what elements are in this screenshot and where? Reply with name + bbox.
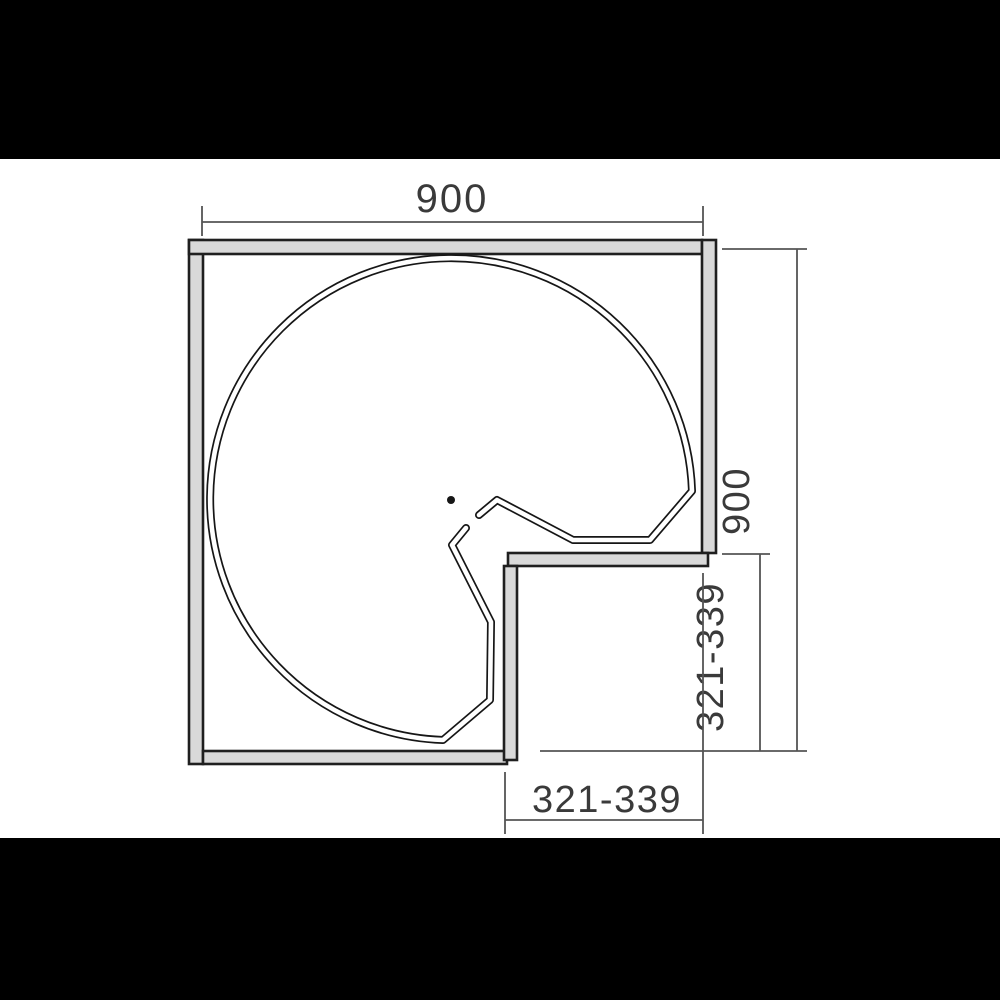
letterbox-top xyxy=(0,0,1000,159)
cabinet-right-wall xyxy=(702,240,716,553)
drawing-canvas: 900 900 321-339 321-339 xyxy=(0,0,1000,1000)
dim-recess-width-label: 321-339 xyxy=(532,779,682,821)
pivot-dot xyxy=(447,496,455,504)
cabinet-bottom-wall xyxy=(203,751,507,764)
dim-cabinet-width-label: 900 xyxy=(416,177,489,221)
dim-cabinet-depth-label: 900 xyxy=(716,467,758,535)
dim-recess-depth-label: 321-339 xyxy=(690,582,732,732)
cabinet-left-wall xyxy=(189,240,203,764)
cabinet-top-wall xyxy=(189,240,702,254)
recess-top-wall xyxy=(508,553,708,566)
recess-side-wall xyxy=(504,566,517,760)
letterbox-bottom xyxy=(0,838,1000,1000)
